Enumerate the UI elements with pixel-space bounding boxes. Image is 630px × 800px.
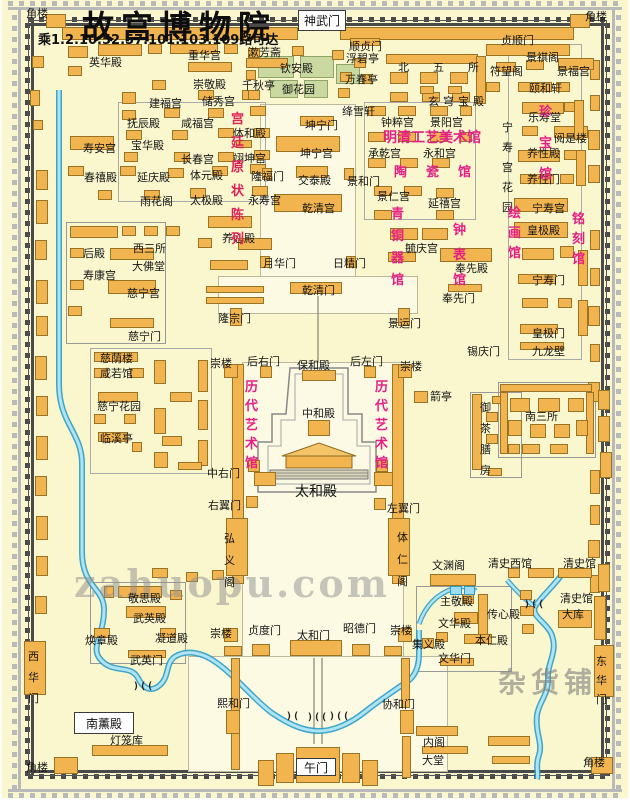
building-block — [36, 516, 48, 540]
building-block — [390, 92, 408, 102]
building-block — [598, 390, 610, 410]
building-block — [588, 130, 600, 150]
building-block — [400, 710, 414, 734]
place-label: 延庆殿 — [137, 172, 170, 185]
place-label: 文华殿 — [438, 618, 471, 631]
place-label: 珍宝馆 — [538, 97, 553, 190]
building-block — [154, 452, 168, 468]
place-label: 钟表馆 — [452, 218, 467, 293]
building-block — [422, 228, 448, 240]
building-block — [254, 472, 276, 486]
place-label: 贞度门 — [248, 625, 281, 638]
building-block — [522, 126, 538, 136]
place-label: 明清工艺美术馆 — [383, 130, 481, 146]
map-canvas: 神武门南薰殿午门 )(()()(()(()(( zahuopu.com 杂货铺 … — [2, 0, 628, 798]
place-label: 锡庆门 — [467, 346, 500, 359]
building-block — [448, 86, 462, 94]
place-label: 宫廷原状陈列 — [230, 108, 245, 252]
building-block — [416, 726, 458, 736]
place-label: 景和门 — [347, 176, 380, 189]
place-label: 景祺阁 — [526, 52, 559, 65]
building-block — [33, 120, 43, 130]
place-label: 交泰殿 — [298, 175, 331, 188]
building-block — [198, 238, 212, 248]
building-block — [374, 498, 386, 510]
building-block — [522, 298, 548, 308]
building-block — [32, 56, 44, 68]
place-label: 咸福宫 — [181, 118, 214, 131]
building-block — [402, 736, 411, 778]
building-block — [68, 166, 84, 176]
building-block — [560, 174, 574, 184]
building-block — [488, 736, 530, 746]
building-block — [352, 644, 370, 656]
place-label: 武英殿 — [133, 613, 166, 626]
bridge-mark: )(( — [133, 681, 154, 692]
building-block — [590, 470, 600, 494]
place-label: 熙和门 — [217, 698, 250, 711]
place-label: 咸若馆 — [100, 368, 133, 381]
building-block — [508, 420, 522, 436]
place-label: 延禧宫 — [428, 198, 461, 211]
place-label: 浮碧亭 — [346, 53, 379, 66]
place-label: 文渊阁 — [432, 560, 465, 573]
building-block — [30, 90, 40, 106]
building-block — [338, 88, 350, 98]
building-block — [168, 168, 184, 178]
place-label: 灯笼库 — [110, 735, 143, 748]
place-label: 大库 — [562, 609, 584, 622]
building-block — [598, 564, 610, 592]
building-block — [198, 400, 208, 430]
building-block — [188, 62, 232, 72]
building-block — [598, 416, 610, 442]
building-block — [36, 556, 48, 576]
building-block — [68, 306, 82, 316]
building-block — [122, 226, 136, 236]
building-block — [154, 408, 166, 434]
building-block — [166, 226, 180, 236]
place-label: 颐和轩 — [529, 83, 562, 96]
building-block — [36, 200, 48, 224]
place-label: 保和殿 — [297, 360, 330, 373]
place-label: 景阳宫 — [430, 117, 463, 130]
bridge-mark: )(( — [524, 599, 545, 610]
place-label: 后右门 — [247, 356, 280, 369]
building-block — [36, 316, 48, 336]
building-block — [576, 150, 586, 186]
building-block — [132, 442, 142, 452]
building-block — [430, 574, 476, 586]
place-label: 慈宁门 — [128, 331, 161, 344]
building-block — [170, 392, 192, 402]
building-block — [124, 414, 136, 424]
place-label: 体元殿 — [190, 170, 223, 183]
building-block — [36, 170, 48, 190]
place-label: 重华宫 — [188, 50, 221, 63]
place-label: 乾清门 — [302, 285, 335, 298]
building-block — [178, 462, 202, 470]
place-label: 集义殿 — [412, 639, 445, 652]
place-label: 传心殿 — [487, 609, 520, 622]
building-block — [362, 760, 378, 786]
building-block — [554, 424, 570, 438]
place-label: 钟粹宫 — [381, 117, 414, 130]
place-label: 焕章殿 — [85, 635, 118, 648]
place-label: 清史馆 — [560, 593, 593, 606]
place-label: 崇敬殿 — [193, 79, 226, 92]
bridge-mark: )(( — [307, 712, 328, 723]
place-label: 右翼门 — [208, 500, 241, 513]
place-label: 景仁宫 — [377, 191, 410, 204]
place-label: 崇楼 — [390, 625, 412, 638]
place-label: 西三所 — [133, 243, 166, 256]
place-label: 内阁 — [423, 737, 445, 750]
place-label: 太和殿 — [295, 484, 337, 500]
building-block — [122, 92, 136, 104]
building-block — [398, 106, 416, 116]
place-label: 九龙壁 — [532, 346, 565, 359]
place-label: 坤宁宫 — [300, 148, 333, 161]
building-block — [588, 540, 600, 558]
building-block — [210, 260, 248, 270]
building-block — [508, 444, 520, 454]
place-label: 凝道殿 — [155, 633, 188, 646]
place-label: 铭刻馆 — [571, 210, 586, 270]
place-label: 永和宫 — [423, 148, 456, 161]
place-label: 北五所 — [398, 62, 503, 75]
building-block — [250, 106, 266, 116]
place-label: 历代艺术馆 — [374, 378, 389, 473]
building-block — [492, 756, 530, 764]
pool-block — [450, 586, 462, 595]
place-label: 宁寿宫花园 — [501, 118, 514, 218]
building-block — [500, 392, 508, 454]
building-block — [144, 226, 158, 236]
place-label: 角楼 — [26, 762, 48, 775]
building-block — [152, 80, 166, 90]
building-block — [522, 624, 534, 634]
building-block — [154, 360, 166, 384]
place-label: 春禧殿 — [84, 172, 117, 185]
building-block — [420, 86, 434, 94]
place-label: 临溪亭 — [100, 433, 133, 446]
place-label: 宁寿宫 — [532, 203, 565, 216]
building-block — [35, 596, 47, 614]
place-label: 英华殿 — [89, 57, 122, 70]
pool-block — [464, 586, 475, 595]
place-label: 太和门 — [297, 630, 330, 643]
place-label: 箭亭 — [430, 391, 452, 404]
place-label: 太极殿 — [190, 195, 223, 208]
place-label: 慈荫楼 — [100, 353, 133, 366]
place-label: 角楼 — [585, 11, 607, 24]
place-label: 日精门 — [333, 258, 366, 271]
place-label: 玄穹宝殿 — [428, 96, 488, 109]
place-label: 后殿 — [83, 248, 105, 261]
bus-route-note: 乘1.2.10.52.57.101.103.109路可达 — [38, 29, 278, 48]
building-block — [70, 280, 84, 290]
place-label: 宝华殿 — [131, 140, 164, 153]
place-label: 左翼门 — [387, 503, 420, 516]
building-block — [206, 297, 264, 304]
building-block — [68, 66, 82, 76]
place-label: 建福宫 — [149, 98, 182, 111]
place-label: 陶瓷馆 — [394, 166, 490, 181]
building-block — [172, 130, 188, 140]
place-label: 崇楼 — [210, 628, 232, 641]
place-label: 崇楼 — [210, 358, 232, 371]
place-label: 清史西馆 — [488, 558, 532, 571]
building-block — [576, 420, 588, 436]
place-label: 文华门 — [438, 653, 471, 666]
place-label: 慈宁宫 — [127, 288, 160, 301]
building-block — [35, 356, 47, 380]
place-label: 皇极门 — [532, 328, 565, 341]
building-block — [594, 596, 606, 640]
place-label: 御花园 — [282, 84, 315, 97]
building-block — [35, 476, 47, 496]
gate-label-box: 午门 — [296, 758, 336, 776]
place-label: 雨花阁 — [140, 196, 173, 209]
place-label: 储秀宫 — [202, 96, 235, 109]
place-label: 抚辰殿 — [127, 118, 160, 131]
place-label: 清史馆 — [563, 558, 596, 571]
place-label: 隆宗门 — [218, 313, 251, 326]
building-block — [308, 420, 330, 436]
place-label: 乾清宫 — [302, 203, 335, 216]
place-label: 钦安殿 — [280, 63, 313, 76]
building-block — [500, 384, 592, 392]
building-block — [226, 710, 240, 734]
building-block — [124, 152, 138, 162]
building-block — [36, 436, 48, 460]
building-block — [342, 753, 360, 783]
building-block — [486, 82, 500, 92]
place-label: 弘义阁 — [223, 528, 236, 594]
place-label: 慈宁花园 — [97, 401, 141, 414]
building-block — [35, 240, 47, 260]
building-block — [120, 166, 136, 176]
gate-label-box: 南薰殿 — [74, 712, 134, 734]
place-label: 绘画馆 — [507, 204, 522, 264]
building-block — [384, 646, 402, 656]
building-block — [246, 496, 258, 508]
place-label: 永寿宫 — [248, 195, 281, 208]
building-block — [332, 50, 344, 60]
building-block — [588, 306, 600, 326]
building-block — [590, 505, 600, 525]
place-label: 中和殿 — [302, 408, 335, 421]
building-block — [590, 230, 600, 250]
place-label: 历代艺术馆 — [244, 378, 259, 473]
building-block — [94, 414, 106, 424]
gate-label-box: 神武门 — [298, 10, 346, 31]
building-block — [588, 165, 600, 183]
building-block — [98, 190, 112, 200]
building-block — [36, 396, 48, 416]
place-label: 万春亭 — [345, 74, 378, 87]
place-label: 坤宁门 — [305, 120, 338, 133]
place-label: 大佛堂 — [132, 261, 165, 274]
place-label: 青铜器馆 — [390, 204, 405, 292]
building-block — [292, 46, 304, 56]
place-label: 敬思殿 — [128, 593, 161, 606]
place-label: 景福宫 — [557, 66, 590, 79]
place-label: 长春宫 — [181, 154, 214, 167]
building-block — [36, 280, 48, 304]
place-label: 绛雪轩 — [342, 106, 375, 119]
building-block — [600, 452, 612, 478]
place-label: 后左门 — [350, 356, 383, 369]
place-label: 阅是楼 — [554, 133, 587, 146]
building-block — [522, 444, 540, 454]
building-block — [568, 398, 584, 412]
place-label: 景运门 — [388, 318, 421, 331]
place-label: 奉先门 — [442, 293, 475, 306]
building-block — [224, 646, 242, 656]
place-label: 南三所 — [525, 411, 558, 424]
bridge-mark: )(( — [329, 711, 350, 722]
building-block — [530, 424, 546, 438]
place-label: 西华门 — [27, 646, 40, 709]
building-block — [252, 644, 270, 656]
place-label: 中右门 — [207, 468, 240, 481]
place-label: 主敬殿 — [440, 596, 473, 609]
place-label: 隆福门 — [251, 171, 284, 184]
building-block — [276, 753, 294, 783]
place-label: 月华门 — [263, 258, 296, 271]
place-label: 武英门 — [130, 655, 163, 668]
place-label: 千秋亭 — [242, 80, 275, 93]
building-block — [54, 757, 78, 774]
building-block — [414, 391, 428, 403]
building-block — [590, 344, 600, 362]
place-label: 协和门 — [382, 699, 415, 712]
place-label: 贞顺门 — [501, 35, 534, 48]
place-label: 东华门 — [595, 652, 608, 709]
bridge-mark: )( — [286, 711, 300, 722]
place-label: 本仁殿 — [475, 635, 508, 648]
building-block — [162, 436, 182, 446]
place-label: 皇极殿 — [527, 225, 560, 238]
building-block — [198, 360, 208, 392]
place-label: 毓庆宫 — [405, 243, 438, 256]
place-label: 体仁阁 — [396, 527, 409, 593]
building-block — [590, 268, 600, 286]
building-block — [590, 95, 600, 111]
building-block — [46, 14, 66, 28]
building-block — [522, 248, 554, 260]
place-label: 御茶膳房 — [479, 397, 492, 481]
place-label: 崇楼 — [400, 361, 422, 374]
watermark-secondary: 杂货铺 — [498, 661, 597, 701]
building-block — [578, 300, 588, 336]
palace-museum-map: 神武门南薰殿午门 )(()()(()(()(( zahuopu.com 杂货铺 … — [0, 0, 630, 800]
place-label: 寿康宫 — [83, 270, 116, 283]
building-block — [550, 444, 568, 454]
place-label: 承乾宫 — [368, 148, 401, 161]
place-label: 大堂 — [422, 755, 444, 768]
building-block — [558, 298, 572, 308]
place-label: 角楼 — [26, 8, 48, 21]
place-label: 昭德门 — [343, 623, 376, 636]
building-block — [70, 226, 118, 238]
place-label: 漱芳斋 — [248, 47, 281, 60]
place-label: 角楼 — [583, 757, 605, 770]
place-label: 寿安宫 — [83, 143, 116, 156]
building-block — [258, 760, 274, 786]
place-label: 宁寿门 — [532, 275, 565, 288]
building-block — [70, 248, 84, 258]
building-block — [206, 286, 264, 293]
building-block — [110, 318, 154, 328]
